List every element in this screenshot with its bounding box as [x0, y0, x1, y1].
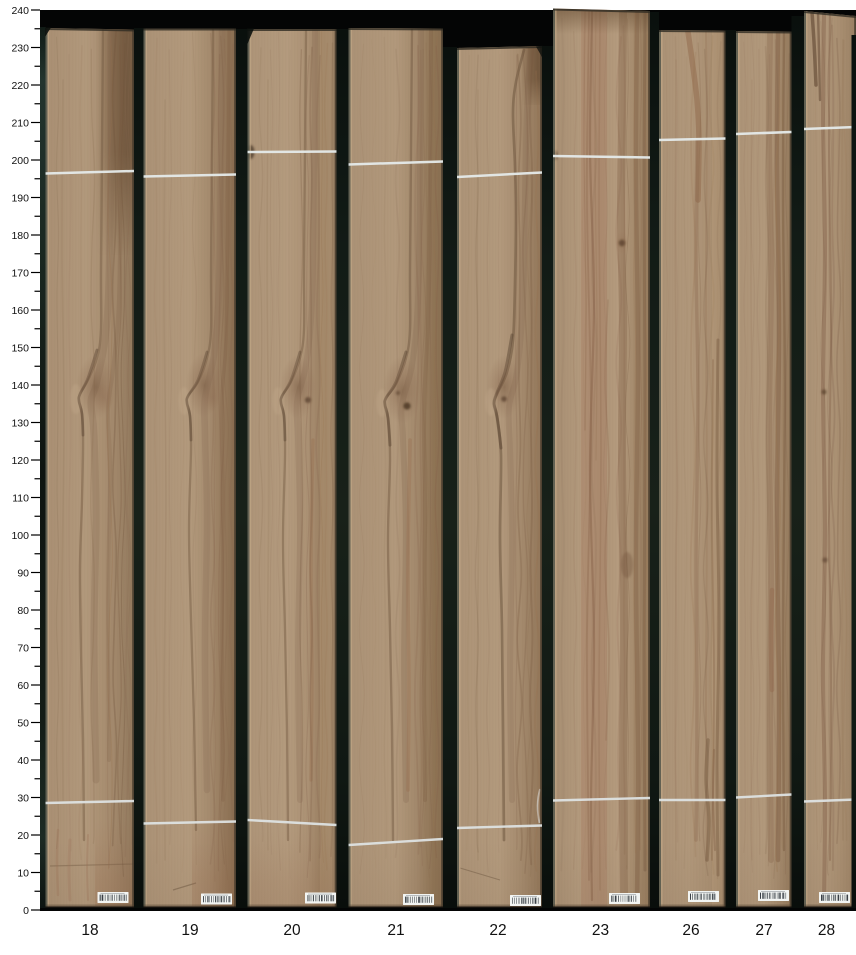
svg-text:23: 23 — [592, 922, 609, 939]
svg-text:220: 220 — [11, 80, 29, 92]
svg-text:210: 210 — [11, 118, 29, 130]
svg-text:120: 120 — [11, 455, 29, 467]
svg-text:10: 10 — [17, 868, 29, 880]
svg-text:50: 50 — [17, 718, 29, 730]
svg-text:110: 110 — [12, 493, 29, 505]
svg-text:20: 20 — [283, 922, 301, 939]
svg-text:30: 30 — [17, 793, 29, 805]
svg-text:190: 190 — [11, 193, 29, 205]
svg-text:20: 20 — [17, 830, 29, 842]
svg-text:130: 130 — [11, 418, 29, 430]
svg-text:100: 100 — [11, 530, 29, 542]
svg-text:180: 180 — [11, 230, 29, 242]
svg-text:21: 21 — [387, 922, 404, 939]
svg-text:60: 60 — [17, 680, 29, 692]
svg-text:170: 170 — [11, 268, 29, 280]
svg-text:28: 28 — [818, 922, 835, 939]
svg-text:22: 22 — [489, 922, 506, 939]
svg-text:150: 150 — [11, 343, 29, 355]
svg-text:90: 90 — [17, 568, 29, 580]
svg-text:80: 80 — [17, 605, 29, 617]
svg-text:140: 140 — [11, 380, 29, 392]
svg-text:200: 200 — [11, 155, 29, 167]
svg-text:19: 19 — [181, 922, 198, 939]
svg-text:160: 160 — [11, 305, 29, 317]
svg-text:0: 0 — [23, 905, 29, 917]
svg-text:240: 240 — [11, 5, 29, 17]
svg-text:230: 230 — [11, 43, 29, 55]
svg-text:26: 26 — [682, 922, 699, 939]
svg-text:70: 70 — [17, 643, 29, 655]
svg-text:40: 40 — [17, 755, 29, 767]
svg-text:27: 27 — [755, 922, 772, 939]
svg-text:18: 18 — [81, 922, 98, 939]
